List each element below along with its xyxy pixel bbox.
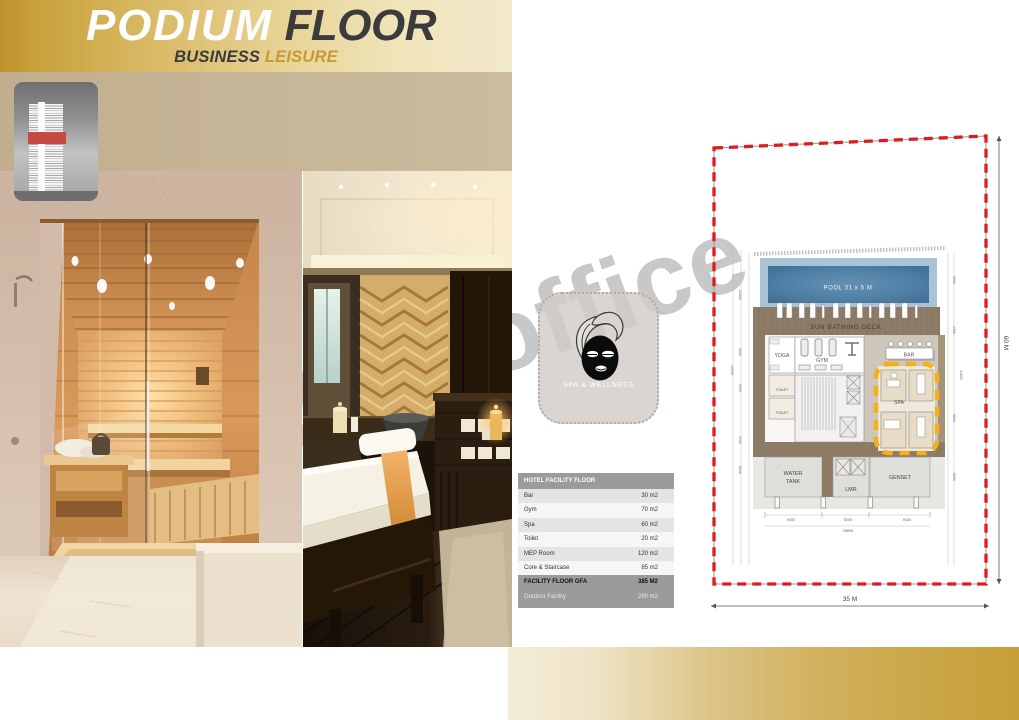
svg-text:WATER: WATER <box>784 471 803 477</box>
svg-text:9000: 9000 <box>952 414 956 422</box>
svg-text:SPA: SPA <box>894 400 905 406</box>
svg-text:60 M: 60 M <box>1002 336 1009 350</box>
svg-text:34800: 34800 <box>959 370 963 380</box>
svg-text:GYM: GYM <box>816 358 828 364</box>
svg-text:10690: 10690 <box>730 365 734 375</box>
svg-text:LMR: LMR <box>845 487 856 493</box>
svg-text:2000: 2000 <box>738 436 742 444</box>
svg-text:35 M: 35 M <box>843 596 857 603</box>
svg-text:5000: 5000 <box>738 348 742 356</box>
svg-text:9200: 9200 <box>844 518 852 522</box>
svg-text:9000: 9000 <box>738 384 742 392</box>
svg-text:POOL 31 x 5 M: POOL 31 x 5 M <box>824 286 873 292</box>
svg-text:SUN BATHING DECK: SUN BATHING DECK <box>810 325 882 331</box>
svg-text:9430: 9430 <box>903 518 911 522</box>
svg-text:GENSET: GENSET <box>889 475 912 481</box>
svg-text:6840: 6840 <box>738 466 742 474</box>
svg-text:BAR: BAR <box>904 353 915 359</box>
svg-text:YOGA: YOGA <box>775 353 791 359</box>
svg-text:2300: 2300 <box>952 326 956 334</box>
svg-text:TANK: TANK <box>786 479 800 485</box>
svg-text:9400: 9400 <box>787 518 795 522</box>
svg-text:6890: 6890 <box>952 473 956 481</box>
svg-text:9000: 9000 <box>952 276 956 284</box>
svg-text:TOILET: TOILET <box>776 388 789 392</box>
svg-text:12800: 12800 <box>738 290 742 300</box>
svg-text:TOILET: TOILET <box>776 411 789 415</box>
svg-text:25690: 25690 <box>843 529 854 533</box>
